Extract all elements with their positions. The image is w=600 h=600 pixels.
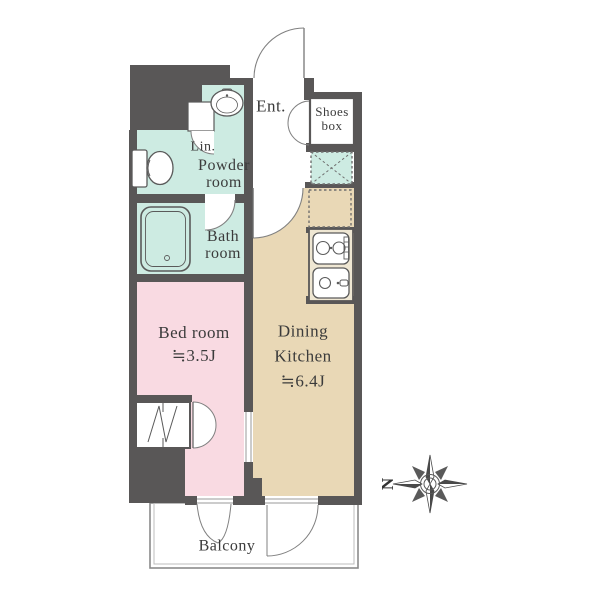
bath-room-label: Bath room <box>205 228 241 262</box>
dining-kitchen-size: ≒6.4J <box>274 369 331 394</box>
compass-rose-icon: N <box>378 455 467 513</box>
compass-north-label: N <box>378 477 397 490</box>
bed-room-size: ≒3.5J <box>158 344 230 367</box>
closet-hanger-icon <box>136 402 216 448</box>
bed-room-label: Bed room ≒3.5J <box>158 321 230 367</box>
floorplan-canvas: N Ent. Shoes box Lin. Powder room Bath r… <box>0 0 600 600</box>
kitchen-counter <box>309 229 353 301</box>
shoes-box-doors <box>288 101 310 145</box>
toilet-icon <box>132 150 173 187</box>
shoes-box-label: Shoes box <box>315 105 349 133</box>
balcony-outline <box>150 503 358 568</box>
stove-icon <box>313 233 349 264</box>
kitchen-sink-icon <box>313 268 349 298</box>
powder-room-label: Powder room <box>198 157 250 191</box>
entrance-label: Ent. <box>256 95 286 118</box>
front-door <box>254 28 304 78</box>
washer-space-icon <box>311 152 352 184</box>
washbasin-icon <box>211 89 243 116</box>
floorplan-drawing: N <box>0 0 600 600</box>
dining-kitchen-label: Dining Kitchen ≒6.4J <box>274 319 331 394</box>
balcony-label: Balcony <box>199 538 256 555</box>
linen-label: Lin. <box>191 140 216 155</box>
bedroom-dk-sliding-door <box>244 412 253 462</box>
